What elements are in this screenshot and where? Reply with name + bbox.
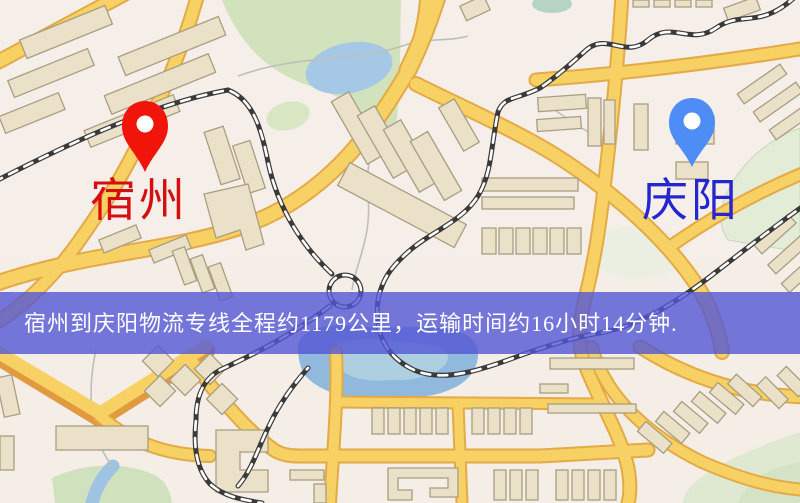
destination-pin-hole [684, 113, 701, 130]
origin-pin-hole [137, 116, 154, 133]
map-graphic [0, 0, 800, 503]
info-banner: 宿州到庆阳物流专线全程约1179公里，运输时间约16小时14分钟. [0, 292, 800, 354]
banner-text: 宿州到庆阳物流专线全程约1179公里，运输时间约16小时14分钟. [24, 292, 678, 354]
map-view[interactable]: 宿州 庆阳 宿州到庆阳物流专线全程约1179公里，运输时间约16小时14分钟. [0, 0, 800, 503]
destination-label: 庆阳 [642, 177, 740, 223]
origin-label: 宿州 [90, 177, 188, 223]
